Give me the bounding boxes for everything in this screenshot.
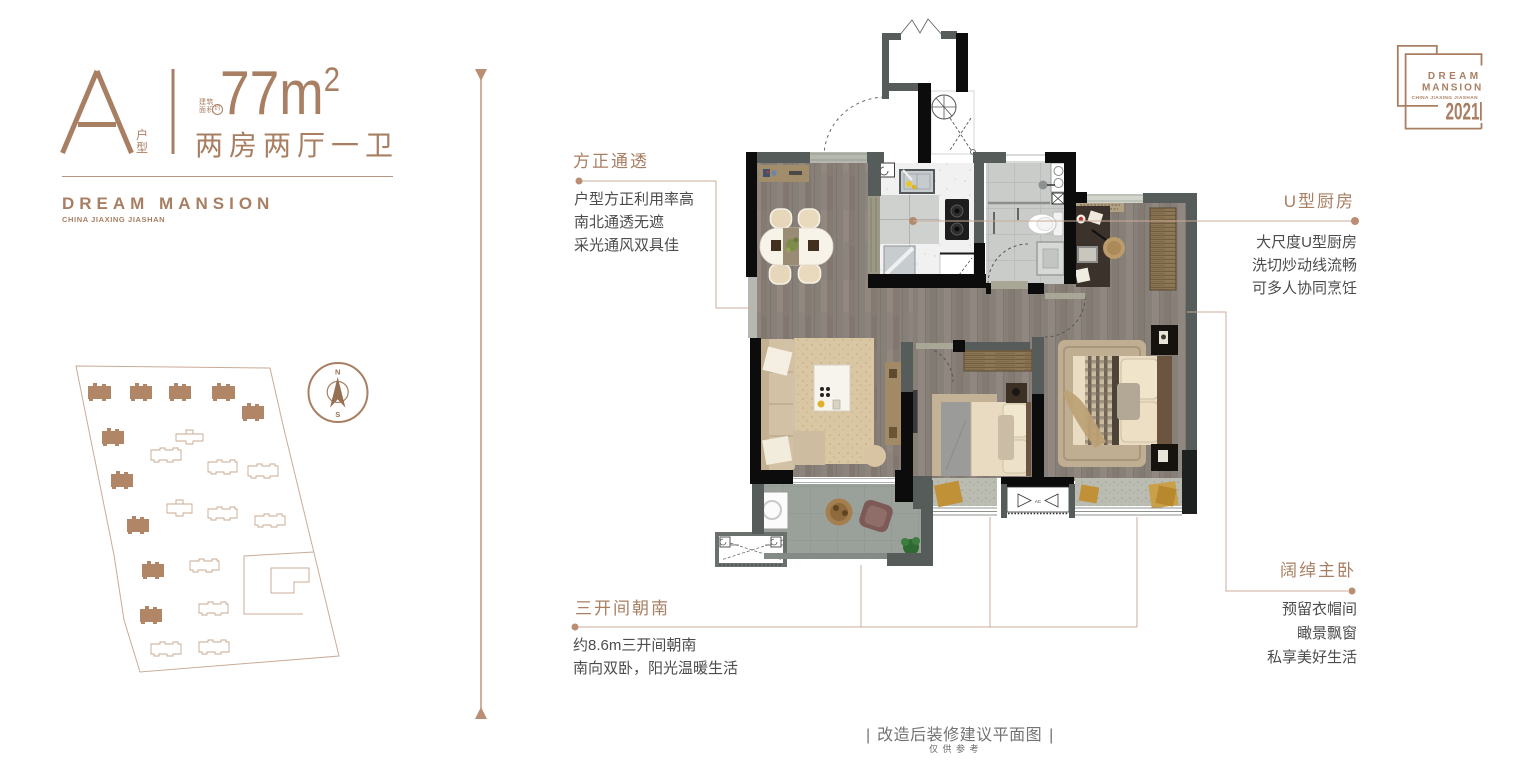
svg-text:DREAM: DREAM	[1428, 71, 1482, 82]
svg-text:MANSION: MANSION	[1422, 83, 1483, 94]
svg-text:AC: AC	[1035, 499, 1042, 504]
svg-text:2021: 2021	[1446, 99, 1480, 126]
